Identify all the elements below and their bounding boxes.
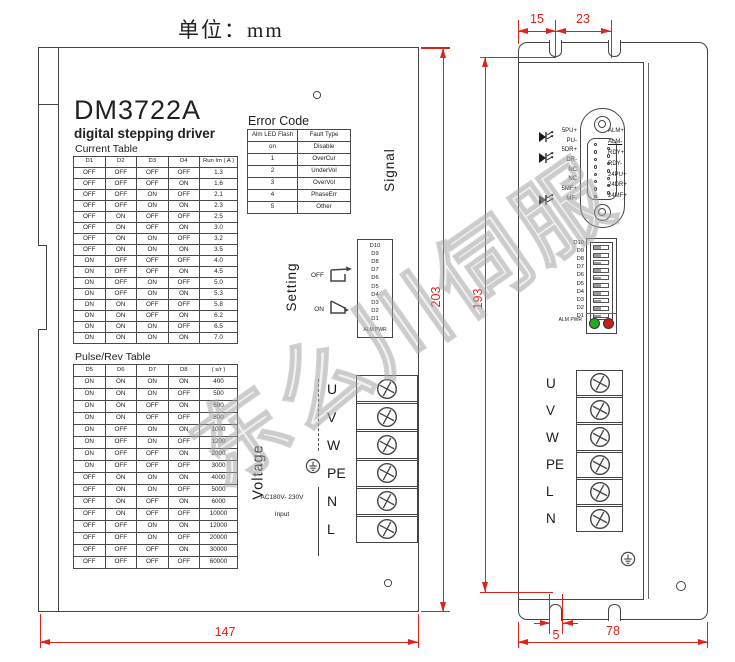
front-bottom-hole <box>384 579 392 587</box>
front-view-notch-side <box>46 245 47 330</box>
list-item-label: D4 <box>577 289 584 295</box>
dip-switch-icon <box>593 291 609 296</box>
ac-input-voltage-label: AC180V- 230V <box>250 494 314 501</box>
product-subtitle: digital stepping driver <box>74 126 215 141</box>
switch-on-icon <box>327 296 354 317</box>
dim-78-arrow-left <box>518 639 528 645</box>
dip-switch-column <box>593 245 609 318</box>
dim-203-arrow-bottom <box>440 602 446 612</box>
list-item-label: 5DR+ <box>561 147 577 153</box>
list-item-label: D8 <box>371 259 378 265</box>
list-item-label: PE <box>327 465 346 481</box>
list-item-label: U <box>546 376 556 391</box>
list-item-label: U <box>327 381 337 397</box>
screw-icon <box>376 406 398 428</box>
front-view-notch-cover <box>36 245 40 330</box>
db15-pin-column-left <box>594 143 597 198</box>
pin-icon <box>594 150 597 153</box>
dim-147-line <box>40 642 418 643</box>
list-item-label: PE <box>546 457 564 472</box>
dip-switch-icon <box>593 298 609 303</box>
list-item-label: D5 <box>371 284 378 290</box>
pin-icon <box>594 195 597 198</box>
dim-23-arrow-right <box>601 28 611 34</box>
front-terminal-labels: UVWPENL <box>327 375 353 543</box>
voltage-label: Voltage <box>251 425 267 520</box>
terminal-cell <box>577 507 622 531</box>
dim-23-ext-right <box>611 20 612 58</box>
dip-switch-icon <box>593 283 609 288</box>
dim-15-value: 15 <box>524 12 550 26</box>
dim-15-arrow-left <box>518 28 528 34</box>
dim-5-arrow-right <box>563 620 573 626</box>
dip-legend-bottom-label: ALM PWR <box>357 327 393 333</box>
dim-193-arrow-top <box>482 57 488 67</box>
screw-icon <box>376 378 398 400</box>
dip-switch-icon <box>593 268 609 273</box>
switch-off-label: OFF <box>306 272 324 279</box>
dip-switch-icon <box>593 260 609 265</box>
power-led-red <box>603 318 614 329</box>
list-item-label: D9 <box>577 248 584 254</box>
dim-147-value: 147 <box>205 625 245 639</box>
dip-legend-list: D10D9D8D7D6D5D4D3D2D1 <box>357 242 393 323</box>
diode-icon <box>537 130 555 144</box>
motor-group-dashed-line <box>318 379 319 451</box>
list-item-label: 5MF+ <box>561 186 577 192</box>
terminal-cell <box>577 398 622 425</box>
list-item-label: W <box>327 437 340 453</box>
list-item-label: ALM- <box>608 139 622 145</box>
ac-input-label: Input <box>250 511 314 518</box>
dim-5-value: 5 <box>546 628 566 642</box>
mounting-slot-bottom-right <box>608 604 621 621</box>
screw-icon <box>589 426 611 448</box>
screw-icon <box>376 518 398 540</box>
terminal-cell <box>357 376 417 404</box>
ac-input-group-line <box>318 487 319 556</box>
front-view-notch-bottom <box>38 329 47 330</box>
list-item-label: D5 <box>577 281 584 287</box>
connector-right-labels: ALM+ALM-RDY+RDY-24PU+24DR+24MF+ <box>608 126 648 202</box>
switch-off-icon <box>327 263 354 284</box>
pin-icon <box>594 143 597 146</box>
list-item-label: L <box>327 521 335 537</box>
dip-switch-icon <box>593 245 609 250</box>
pin-icon <box>594 180 597 183</box>
front-view-flange-line <box>58 47 59 612</box>
technical-drawing-canvas: 单位：mm DM3722A digital stepping driver Cu… <box>0 0 735 662</box>
terminal-cell <box>577 371 622 398</box>
side-terminal-labels: UVWPELN <box>546 370 574 532</box>
list-item-label: D6 <box>577 272 584 278</box>
side-view-body-edge-line <box>648 63 649 599</box>
list-item-label: D7 <box>577 264 584 270</box>
terminal-cell <box>577 425 622 452</box>
mounting-slot-bottom-left <box>549 604 562 621</box>
terminal-cell <box>577 453 622 480</box>
dip-switch-icon <box>593 253 609 258</box>
setting-label: Setting <box>283 247 299 327</box>
list-item-label: D10 <box>370 243 381 249</box>
screw-icon <box>589 372 611 394</box>
list-item-label: V <box>546 403 555 418</box>
list-item-label: W <box>546 430 559 445</box>
list-item-label: NC <box>568 176 577 182</box>
list-item-label: N <box>546 511 556 526</box>
terminal-cell <box>357 489 417 517</box>
terminal-cell <box>357 461 417 489</box>
list-item-label: D8 <box>577 256 584 262</box>
dim-193-value: 193 <box>471 284 485 314</box>
screw-icon <box>376 434 398 456</box>
list-item-label: PU- <box>567 138 577 144</box>
dim-78-value: 78 <box>598 624 628 638</box>
list-item-label: 24DR+ <box>608 182 627 188</box>
led-divider <box>586 313 617 314</box>
list-item-label: D2 <box>371 308 378 314</box>
list-item-label: DR- <box>566 157 577 163</box>
dip-switch-icon <box>593 275 609 280</box>
screw-icon <box>589 508 611 530</box>
list-item-label: D10 <box>573 240 584 246</box>
terminal-cell <box>357 517 417 542</box>
db15-bottom-screw-hole-inner <box>598 208 606 216</box>
front-view-flange-tick <box>38 104 58 105</box>
list-item-label: D3 <box>371 300 378 306</box>
dim-203-line <box>443 48 444 612</box>
screw-icon <box>376 462 398 484</box>
front-terminal-block <box>356 375 418 543</box>
list-item-label: NC <box>568 167 577 173</box>
list-item-label: MF- <box>566 196 577 202</box>
list-item-label: D7 <box>371 267 378 273</box>
terminal-cell <box>577 480 622 507</box>
list-item-label: L <box>546 484 554 499</box>
pin-icon <box>594 187 597 190</box>
dim-15-arrow-right <box>546 28 556 34</box>
list-item-label: RDY+ <box>608 150 624 156</box>
mounting-plate-hole <box>676 581 686 591</box>
list-item-label: 24MF+ <box>608 193 627 199</box>
dim-203-arrow-top <box>440 48 446 58</box>
current-table-label: Current Table <box>75 143 138 155</box>
list-item-label: D6 <box>371 275 378 281</box>
dim-147-arrow-left <box>40 639 50 645</box>
alarm-led-green <box>589 318 600 329</box>
list-item-label: ALM+ <box>608 128 624 134</box>
earth-icon <box>305 458 321 474</box>
db15-top-screw-hole-inner <box>598 120 606 128</box>
error-code-label: Error Code <box>248 114 309 128</box>
list-item-label: D9 <box>371 251 378 257</box>
list-item-label: D2 <box>577 305 584 311</box>
dim-23-arrow-left <box>556 28 566 34</box>
list-item-label: N <box>327 493 337 509</box>
dip-switch-labels: D10D9D8D7D6D5D4D3D2D1 <box>558 239 584 320</box>
pulse-rev-table: D5D6D7D8( s/r )ONONONON400ONONONOFF500ON… <box>73 364 237 569</box>
error-code-table: Alm LED FlashFault TypeonDisable1OverCur… <box>247 129 350 214</box>
list-item-label: D1 <box>371 316 378 322</box>
switch-on-label: ON <box>308 306 324 313</box>
dim-78-line <box>518 642 708 643</box>
terminal-cell <box>357 432 417 460</box>
screw-icon <box>376 490 398 512</box>
unit-label: 单位：mm <box>178 14 284 44</box>
dim-147-arrow-right <box>408 639 418 645</box>
dim-193-ext-top <box>480 57 556 58</box>
led-label: ALM PWR <box>544 317 582 323</box>
list-item-label: 24PU+ <box>608 172 627 178</box>
screw-icon <box>589 481 611 503</box>
dim-193-line <box>485 57 486 592</box>
dim-15-ext-right <box>555 20 556 58</box>
list-item-label: 5PU+ <box>562 128 577 134</box>
pin-icon <box>594 165 597 168</box>
dim-78-arrow-right <box>698 639 708 645</box>
dim-5-arrow-left <box>540 620 550 626</box>
dip-switch-icon <box>593 306 609 311</box>
front-top-hole <box>313 91 321 99</box>
list-item-label: D4 <box>371 292 378 298</box>
list-item-label: D3 <box>577 297 584 303</box>
list-item-label: V <box>327 409 336 425</box>
pin-icon <box>594 158 597 161</box>
earth-screw-icon <box>620 551 636 567</box>
pin-icon <box>594 173 597 176</box>
screw-icon <box>589 454 611 476</box>
signal-label: Signal <box>381 130 397 210</box>
side-terminal-block <box>576 370 623 532</box>
dim-193-ext-bottom <box>480 592 553 593</box>
current-table: D1D2D3D4Run Im ( A )OFFOFFOFFOFF1.3OFFOF… <box>73 156 237 344</box>
pulse-table-label: Pulse/Rev Table <box>75 351 151 363</box>
terminal-cell <box>357 404 417 432</box>
diode-icon <box>537 193 555 207</box>
product-title: DM3722A <box>74 95 201 126</box>
dim-193-arrow-bottom <box>482 582 488 592</box>
diode-icon <box>537 151 555 165</box>
list-item-label: RDY- <box>608 161 622 167</box>
dim-203-value: 203 <box>429 282 443 312</box>
dim-23-value: 23 <box>570 12 596 26</box>
screw-icon <box>589 399 611 421</box>
